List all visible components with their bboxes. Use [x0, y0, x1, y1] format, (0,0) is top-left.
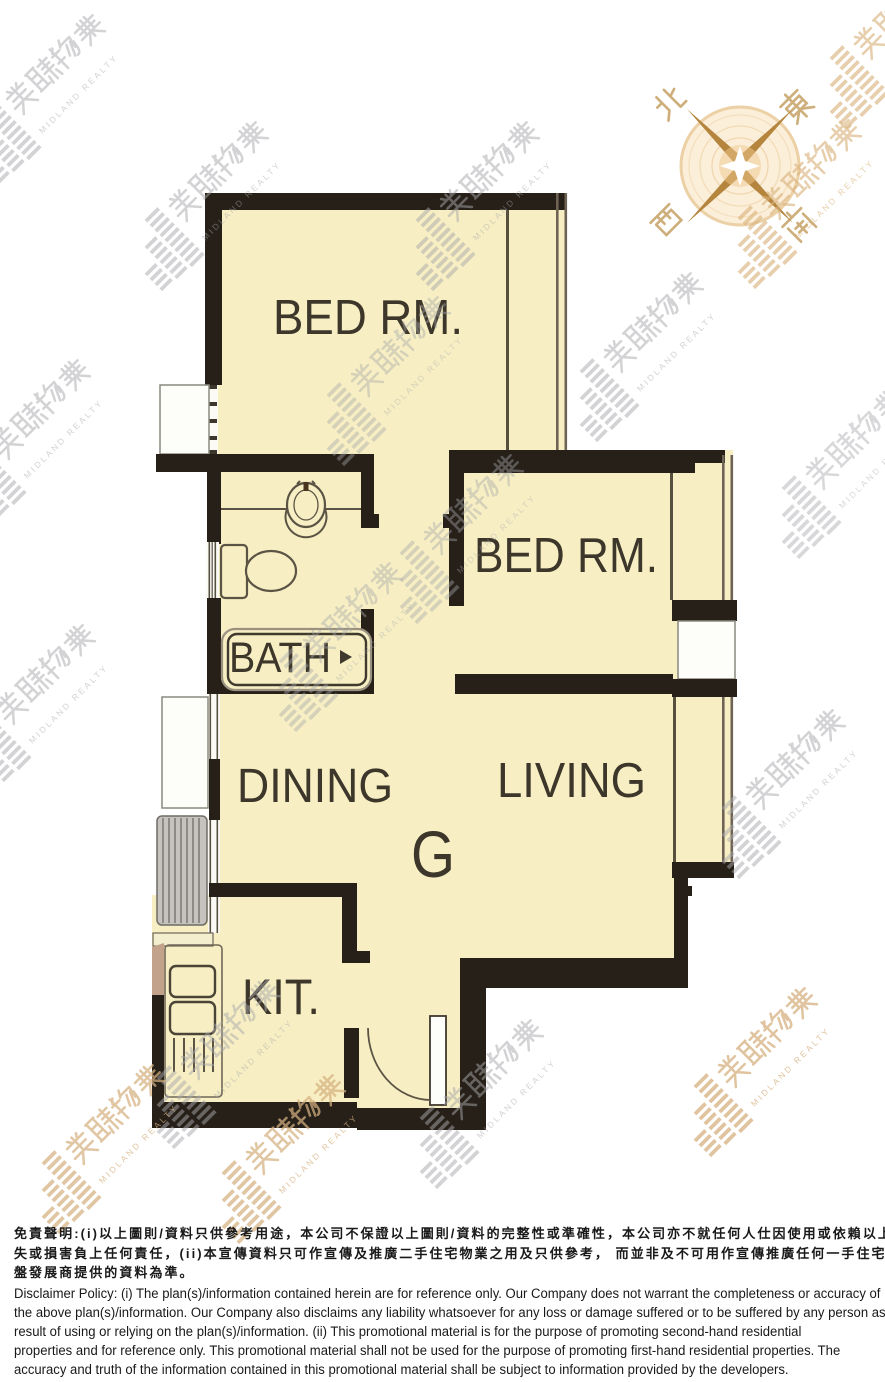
svg-text:LIVING: LIVING: [497, 754, 646, 808]
svg-text:G: G: [411, 817, 455, 891]
svg-text:BED RM.: BED RM.: [474, 529, 658, 583]
svg-text:DINING: DINING: [237, 760, 393, 813]
